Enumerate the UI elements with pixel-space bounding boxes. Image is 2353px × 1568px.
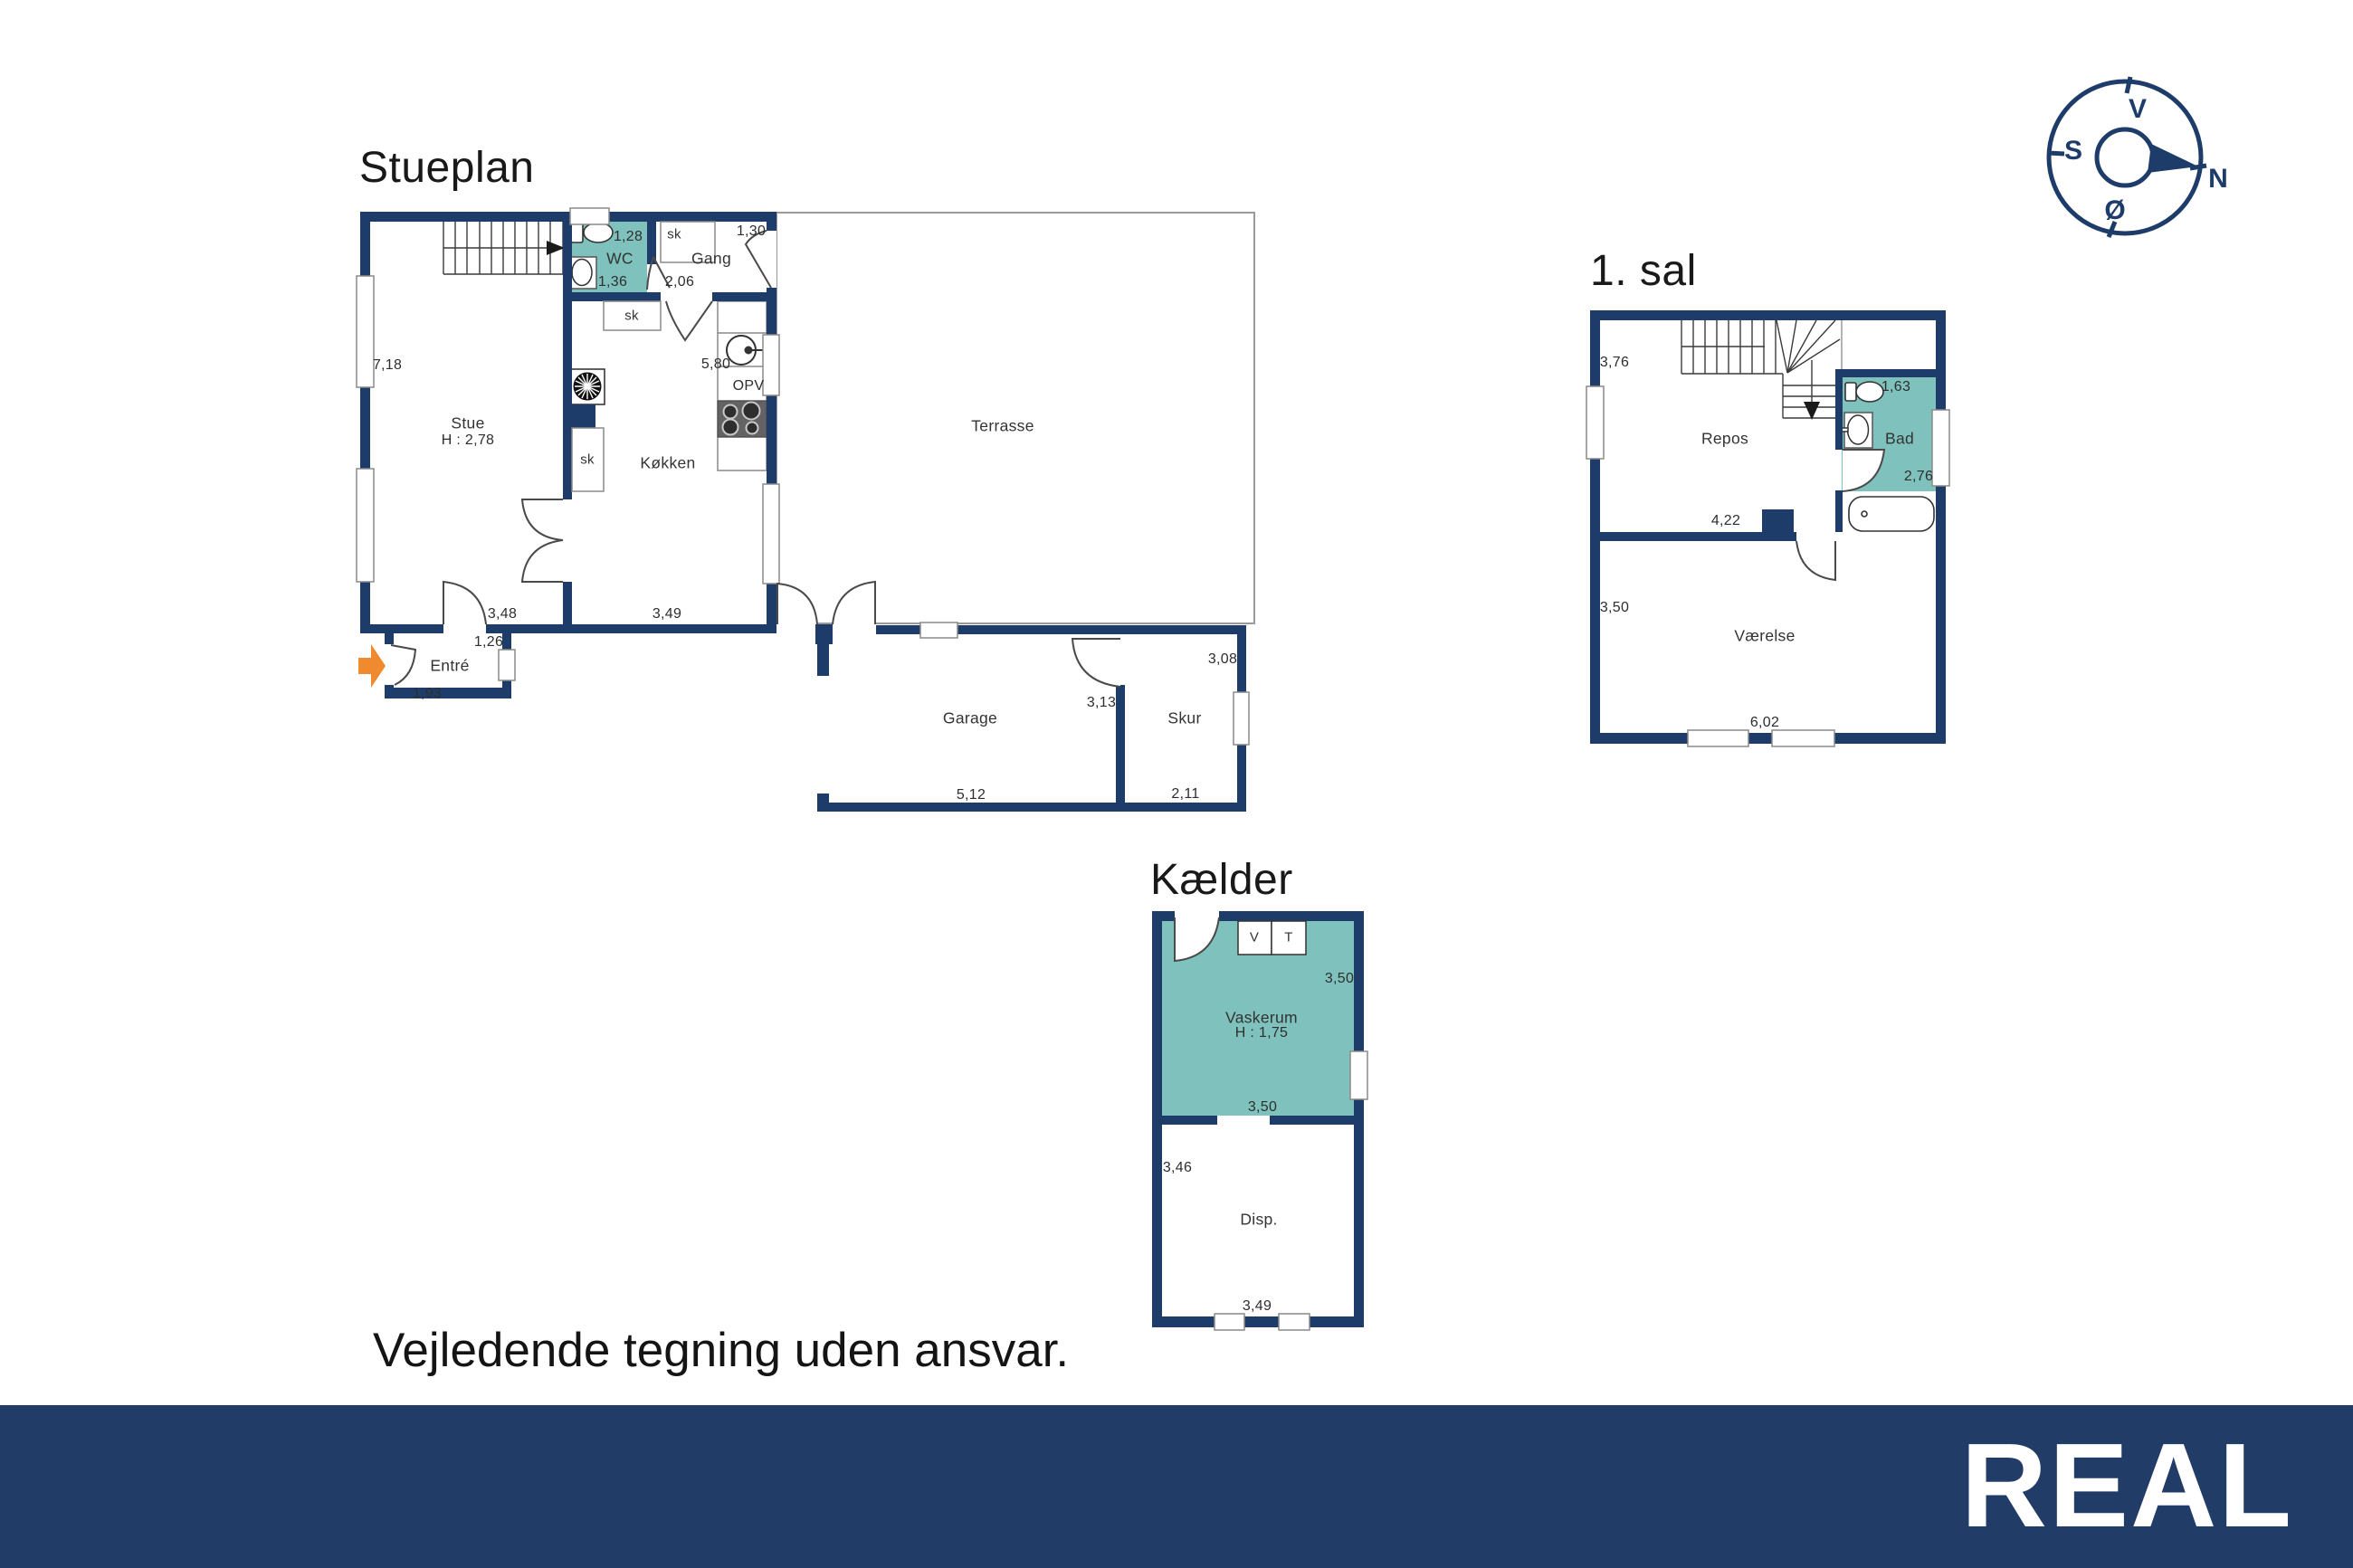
washer-label: V	[1250, 930, 1259, 946]
title-first-floor: 1. sal	[1590, 246, 1697, 296]
room-label-kokken: Køkken	[640, 454, 695, 473]
measure-wc-bottom: 1,36	[598, 274, 627, 290]
measure-vaskerum-right: 3,50	[1325, 971, 1354, 987]
bad-toilet-icon	[1845, 382, 1883, 402]
dryer-label: T	[1284, 930, 1292, 946]
measure-repos-bottom: 4,22	[1711, 513, 1740, 529]
closet-label-kokken: sk	[624, 309, 639, 324]
measure-entre-top: 1,26	[474, 634, 503, 651]
footer-bar: REAL	[0, 1405, 2353, 1568]
washer-dryer-boxes	[1238, 921, 1306, 955]
measure-vaskerum-bottom: 3,50	[1248, 1099, 1277, 1116]
room-label-repos: Repos	[1701, 430, 1748, 449]
compass-label-vest: V	[2129, 94, 2147, 125]
real-logo: REAL	[1961, 1426, 2293, 1545]
measure-skur-top: 3,08	[1208, 651, 1237, 668]
room-label-gang: Gang	[691, 250, 731, 269]
room-label-wc: WC	[606, 250, 633, 269]
measure-wc-top: 1,28	[614, 229, 643, 245]
measure-disp-bottom: 3,49	[1243, 1298, 1272, 1315]
measure-skur-bottom: 2,11	[1171, 786, 1199, 803]
title-stueplan: Stueplan	[359, 143, 535, 193]
stove-icon	[718, 401, 767, 437]
room-label-entre: Entré	[430, 657, 469, 676]
stairs-first-floor	[1681, 320, 1840, 420]
compass-label-ost: Ø	[2104, 195, 2125, 226]
measure-bad-top: 1,63	[1881, 379, 1910, 395]
bathtub-icon	[1849, 497, 1934, 531]
room-label-terrasse: Terrasse	[971, 417, 1034, 436]
room-label-skur: Skur	[1167, 709, 1201, 728]
room-label-bad: Bad	[1885, 430, 1914, 449]
stairs-up-arrow-icon	[547, 241, 565, 255]
measure-stue-left: 7,18	[373, 357, 402, 374]
bad-sink-icon	[1840, 413, 1872, 448]
measure-vaerelse-left: 3,50	[1600, 600, 1629, 616]
closet-label-stue: sk	[580, 452, 595, 468]
measure-kokken-right: 5,80	[701, 356, 730, 373]
stairs-ground-floor	[443, 222, 565, 274]
room-height-vaskerum: H : 1,75	[1235, 1025, 1288, 1041]
room-label-disp: Disp.	[1240, 1211, 1277, 1230]
measure-vaerelse-bottom: 6,02	[1750, 715, 1779, 731]
measure-garage-right: 3,13	[1087, 695, 1116, 711]
floorplan-drawing	[0, 0, 2353, 1568]
measure-repos-left: 3,76	[1600, 355, 1629, 371]
fireplace-icon	[570, 369, 605, 404]
measure-gang-bottom: 2,06	[665, 274, 694, 290]
room-label-vaerelse: Værelse	[1734, 627, 1795, 646]
measure-disp-left: 3,46	[1163, 1160, 1192, 1176]
measure-stue-bottom: 3,48	[488, 606, 517, 622]
room-label-garage: Garage	[943, 709, 997, 728]
room-label-stue: Stue	[451, 414, 484, 433]
closet-label-gang: sk	[667, 227, 681, 242]
compass-label-syd: S	[2064, 136, 2082, 166]
floorplan-page: Stueplan 1. sal Kælder Stue H : 2,78 WC …	[0, 0, 2353, 1568]
title-basement: Kælder	[1150, 855, 1293, 905]
disclaimer-text: Vejledende tegning uden ansvar.	[373, 1323, 1069, 1378]
entrance-arrow-icon	[358, 644, 386, 688]
measure-gang-top: 1,30	[737, 223, 766, 240]
dishwasher-label: OPV	[733, 378, 765, 394]
room-height-stue: H : 2,78	[442, 432, 494, 449]
wc-toilet-icon	[571, 223, 613, 242]
measure-garage-bottom: 5,12	[957, 787, 986, 803]
stairs-down-arrow-icon	[1804, 402, 1820, 420]
measure-entre-bottom: 1,93	[413, 686, 442, 702]
measure-kokken-bottom: 3,49	[653, 606, 681, 622]
measure-bad-right: 2,76	[1904, 469, 1933, 485]
compass-label-nord: N	[2208, 164, 2228, 195]
